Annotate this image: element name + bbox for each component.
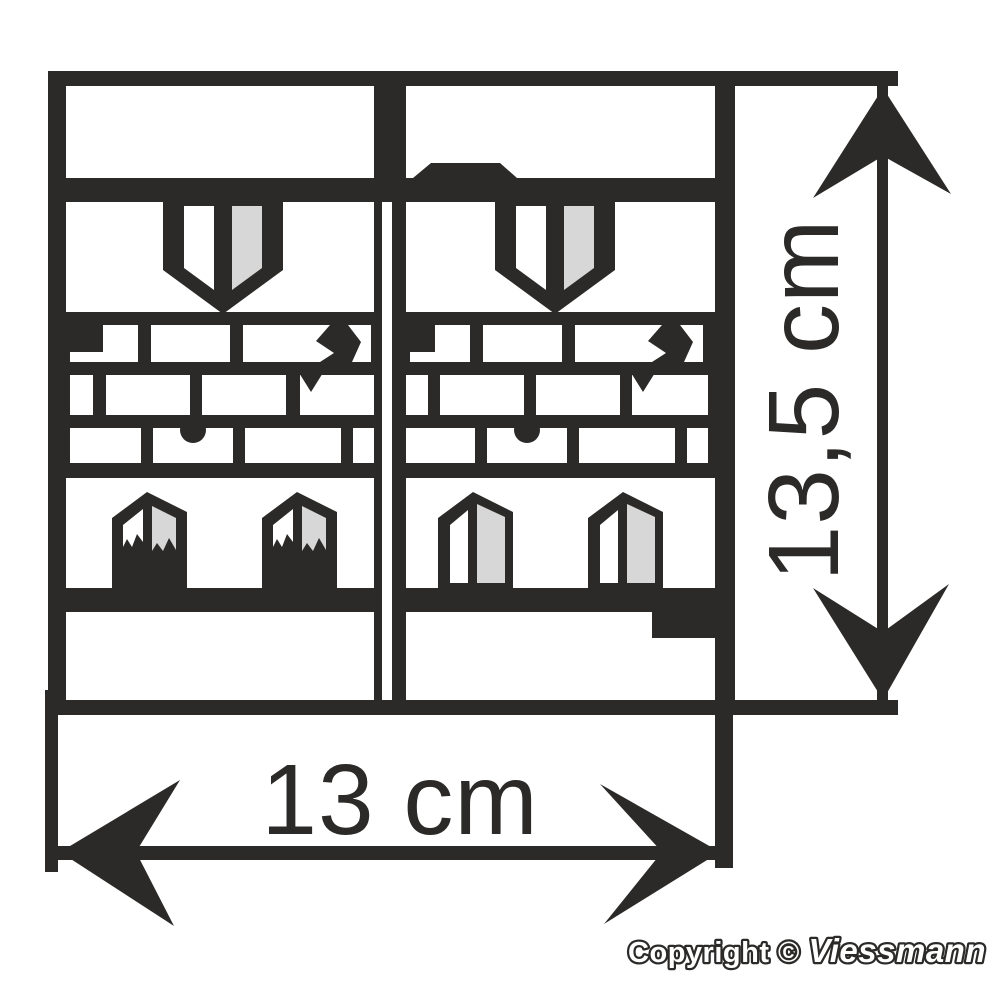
brick [406, 428, 475, 463]
dormer-window [438, 492, 513, 588]
brick [70, 375, 93, 415]
brick [536, 375, 620, 415]
brick [440, 375, 524, 415]
brick [353, 428, 374, 463]
dormer-window-broken [112, 492, 187, 588]
dormer-window [588, 492, 663, 588]
width-dimension-label: 13 cm [261, 744, 538, 856]
roof-bump [413, 163, 517, 178]
left-border [48, 71, 66, 715]
brick [579, 428, 675, 463]
dormer-pane-right [477, 504, 505, 583]
brick [687, 428, 708, 463]
top-border-and-top-tick [48, 71, 898, 86]
shield-frame [495, 190, 615, 314]
brick [106, 375, 190, 415]
brick [245, 428, 341, 463]
dimension-line-vertical [877, 86, 888, 700]
brick [406, 375, 428, 415]
sill-step [652, 612, 715, 638]
copyright-text: Copyright © Viessmann [628, 932, 986, 969]
right-border [715, 71, 735, 715]
brick [202, 375, 286, 415]
peg-hole [180, 417, 206, 443]
copyright-brand: Viessmann [808, 932, 986, 969]
shield-frame [163, 190, 283, 314]
peg-hole [514, 417, 540, 443]
brick [70, 428, 141, 463]
panel-divider [374, 71, 406, 700]
extension-line-left [45, 690, 58, 872]
sill-band [406, 588, 715, 612]
height-dimension-label: 13,5 cm [748, 219, 860, 582]
extension-line-right [715, 715, 733, 868]
dormer-window-broken [262, 492, 337, 588]
left-panel [62, 178, 374, 612]
technical-drawing-page: 13,5 cm 13 cm Copyright © Viessmann [0, 0, 1000, 1000]
bottom-border-and-bottom-tick [48, 700, 898, 715]
height-dimension: 13,5 cm [748, 86, 951, 700]
brick [151, 325, 230, 362]
brick-band [66, 312, 374, 478]
sill-band [66, 588, 374, 612]
shield-window [495, 190, 615, 314]
dormer-pane-right [627, 504, 655, 583]
brick [483, 325, 562, 362]
copyright-prefix: Copyright © [628, 937, 808, 969]
brick-band [406, 312, 715, 478]
dimension-diagram: 13,5 cm 13 cm Copyright © Viessmann [0, 0, 1000, 1000]
width-dimension: 13 cm [45, 690, 733, 926]
shield-window [163, 190, 283, 314]
right-panel [406, 163, 715, 638]
